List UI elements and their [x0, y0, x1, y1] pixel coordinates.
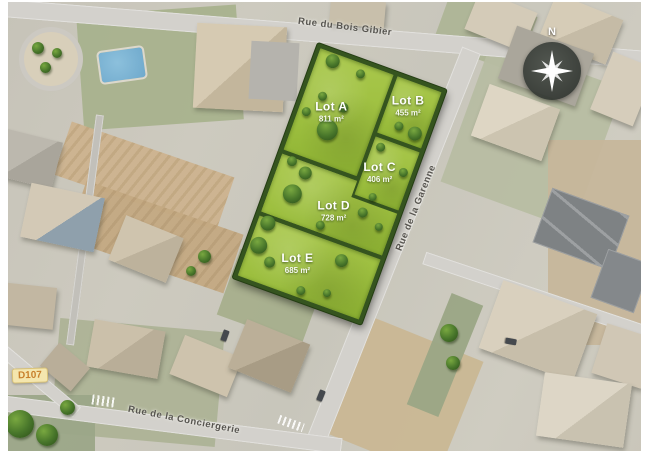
- crosswalk: [277, 415, 305, 432]
- screenshot-root: Lot A 811 m² Lot B 455 m² Lot C 406 m² L…: [0, 0, 650, 453]
- compass-north-label: N: [523, 26, 581, 38]
- tree: [32, 42, 44, 54]
- lot-d-area: 728 m²: [317, 213, 350, 222]
- lot-a-label: Lot A 811 m²: [315, 100, 347, 124]
- tree: [440, 324, 458, 342]
- building: [249, 41, 300, 101]
- tree: [446, 356, 460, 370]
- lot-e-name: Lot E: [281, 251, 313, 265]
- compass-circle: [523, 42, 581, 100]
- lot-c-name: Lot C: [363, 160, 396, 174]
- lot-d-name: Lot D: [317, 198, 350, 212]
- tree: [40, 62, 51, 73]
- tree: [52, 48, 62, 58]
- lot-b-area: 455 m²: [392, 109, 425, 118]
- building: [8, 129, 63, 190]
- tree: [36, 424, 58, 446]
- compass-rose: N: [523, 26, 581, 100]
- lot-b-name: Lot B: [392, 94, 425, 108]
- lot-a-name: Lot A: [315, 100, 347, 114]
- lot-c-label: Lot C 406 m²: [363, 160, 396, 184]
- swimming-pool: [96, 45, 148, 85]
- building: [536, 372, 632, 448]
- aerial-photo-layer: Lot A 811 m² Lot B 455 m² Lot C 406 m² L…: [8, 2, 641, 451]
- lot-e-area: 685 m²: [281, 266, 313, 275]
- roundabout: [24, 32, 78, 86]
- lot-e-label: Lot E 685 m²: [281, 251, 313, 275]
- lot-b-label: Lot B 455 m²: [392, 94, 425, 118]
- lot-d-label: Lot D 728 m²: [317, 198, 350, 222]
- road-badge-d107: D107: [12, 367, 48, 383]
- lot-a-area: 811 m²: [315, 115, 347, 124]
- lot-c-area: 406 m²: [363, 175, 396, 184]
- tree: [186, 266, 196, 276]
- building: [8, 282, 57, 330]
- tree: [60, 400, 75, 415]
- aerial-map: Lot A 811 m² Lot B 455 m² Lot C 406 m² L…: [8, 2, 641, 451]
- tree: [198, 250, 211, 263]
